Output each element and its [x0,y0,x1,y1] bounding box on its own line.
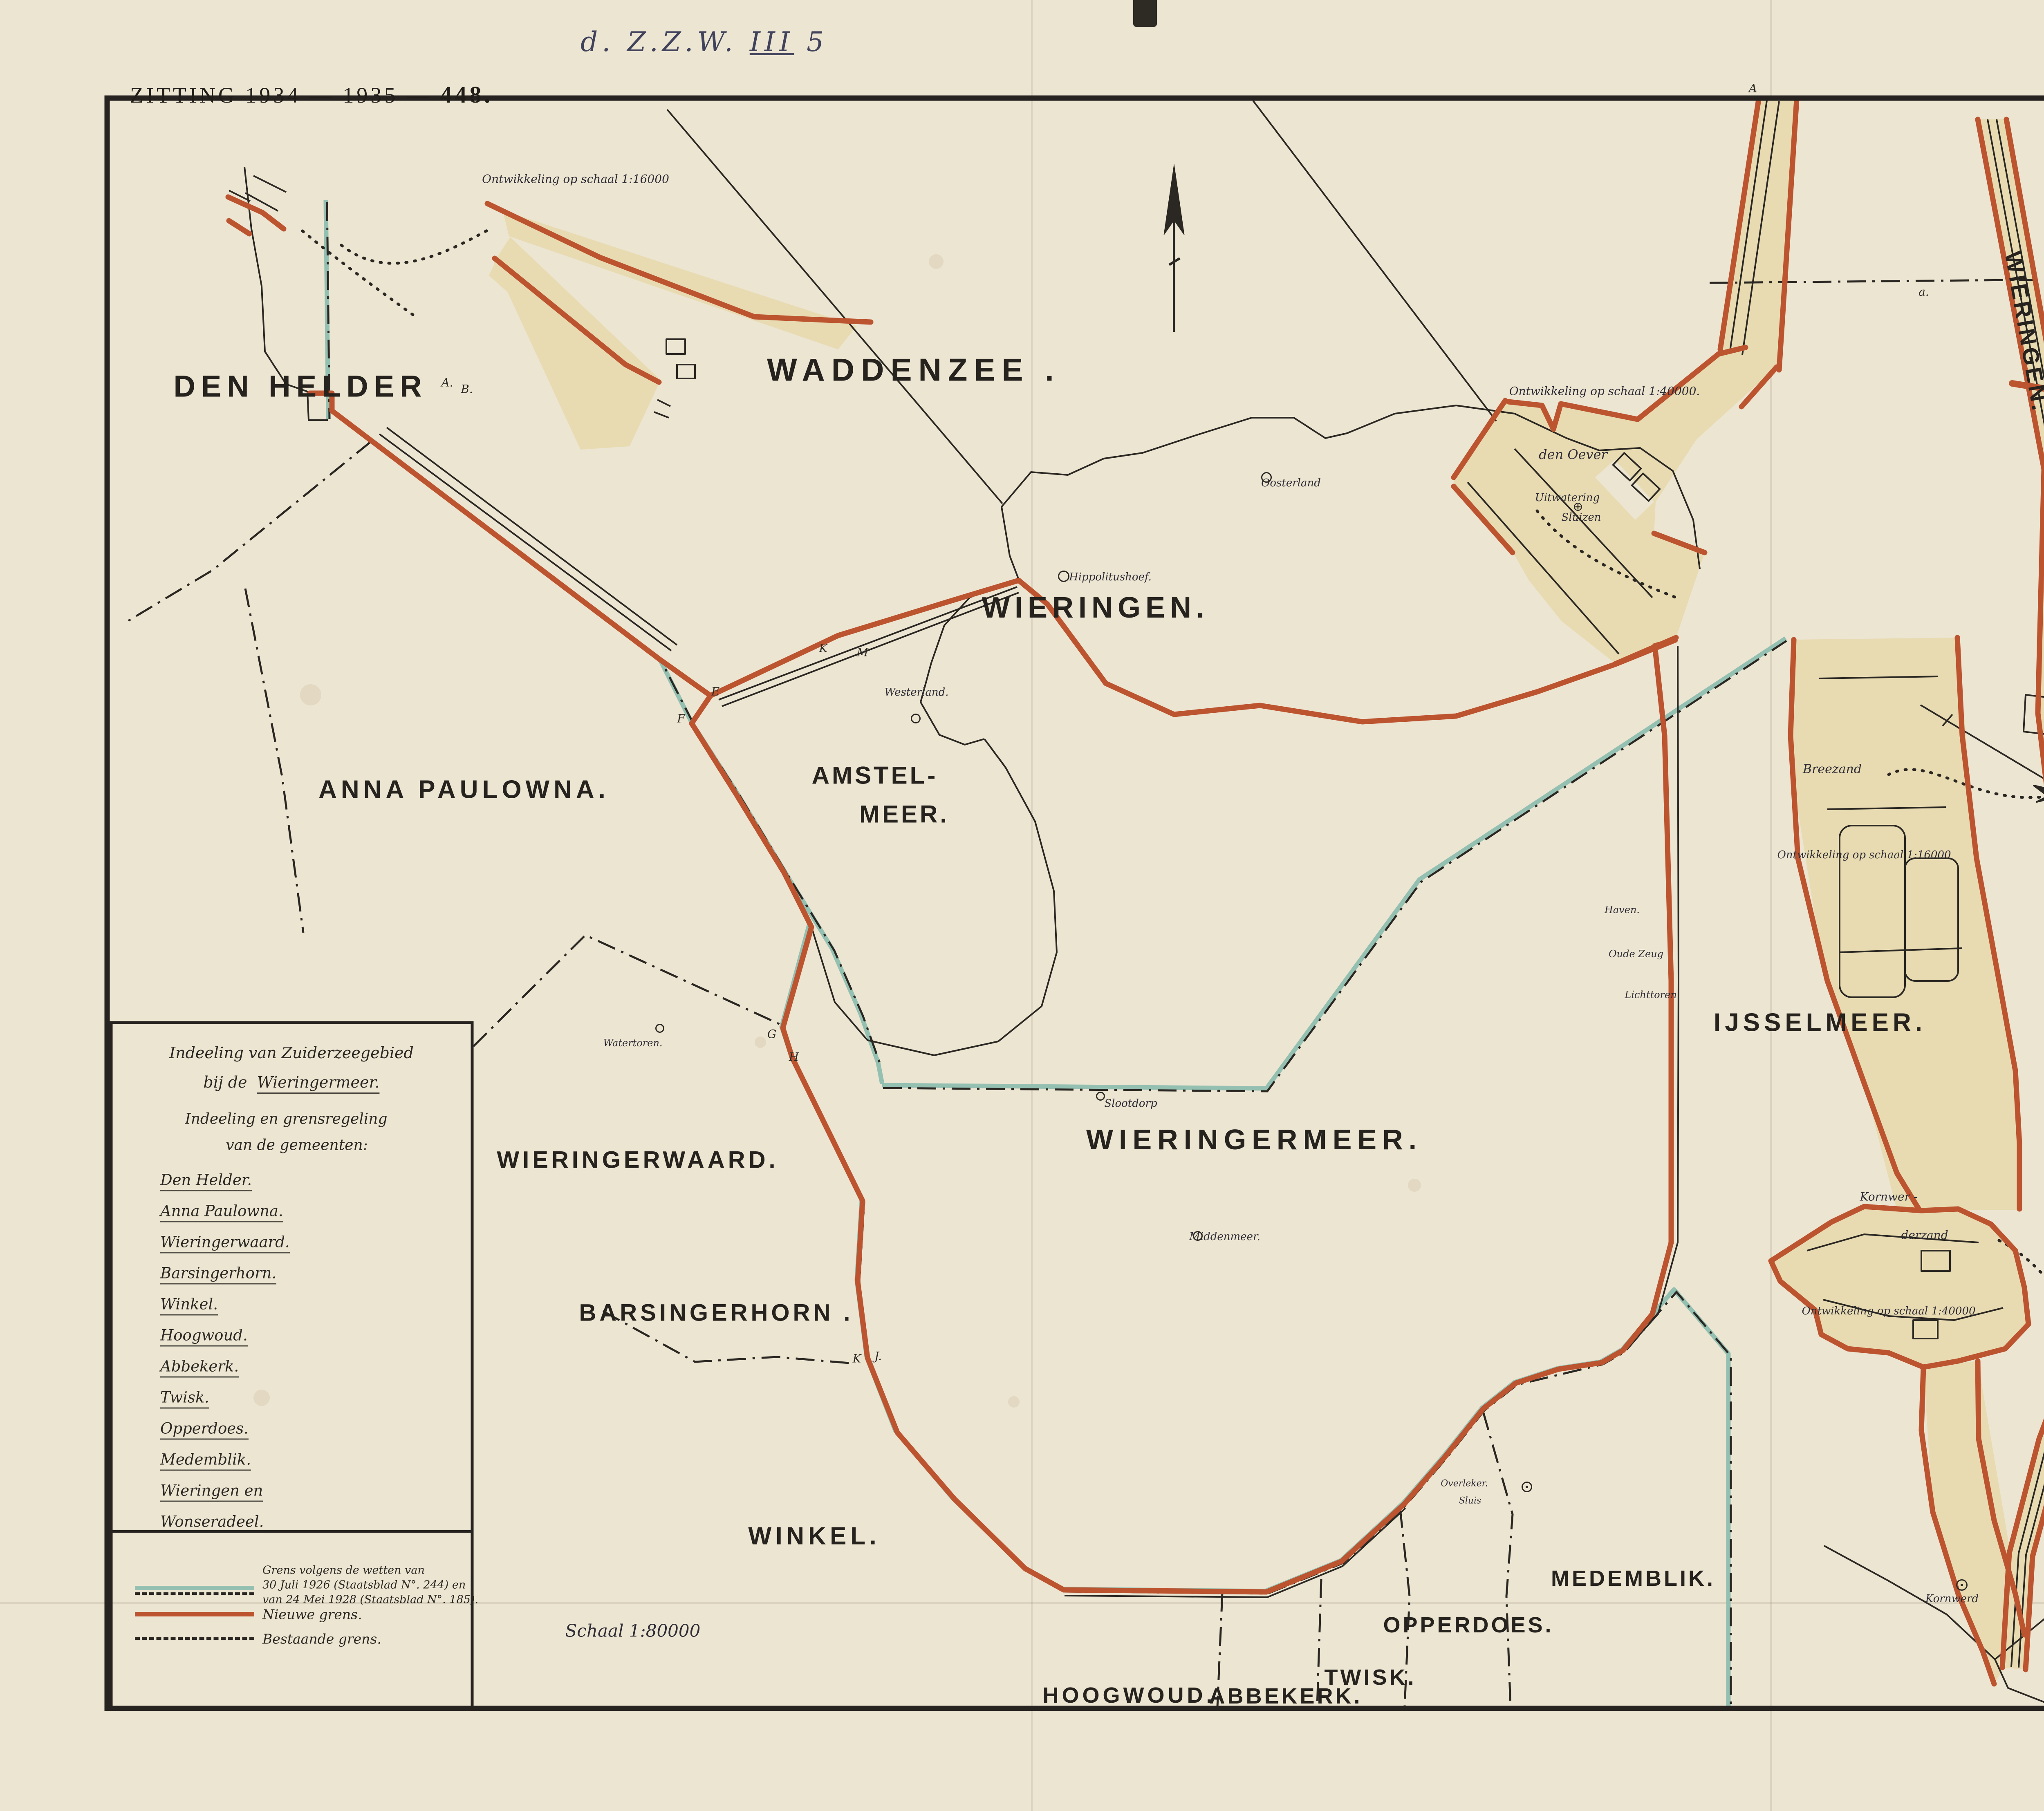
map-linework [0,0,2044,1811]
land-fills [489,99,2044,1684]
paper-stains [253,231,2044,1408]
existing-boundary-dash [128,202,2044,1707]
scan-mark [1133,0,1157,27]
map-sheet: WADDENZEE .DEN HELDERWIERINGEN.ANNA PAUL… [0,0,2044,1811]
north-arrow-icon [1164,164,1184,332]
